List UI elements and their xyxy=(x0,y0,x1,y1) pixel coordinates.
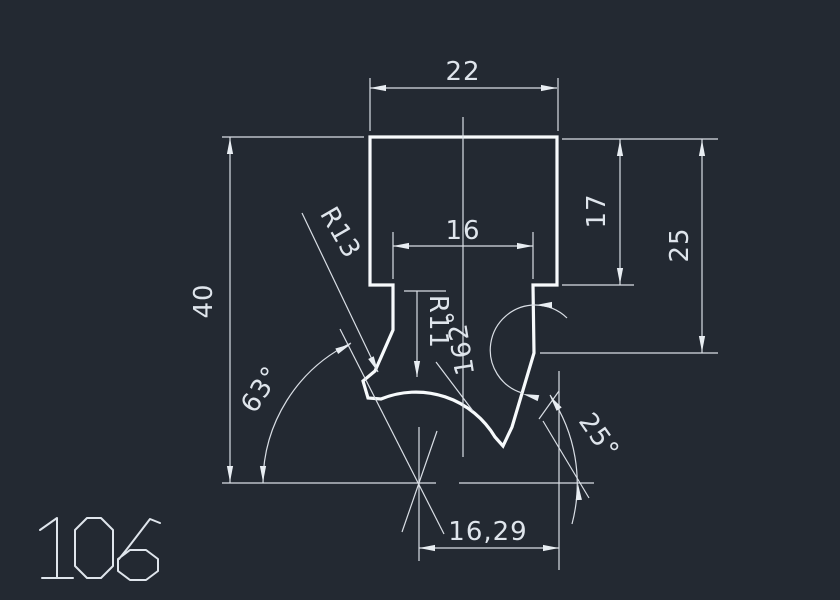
digit-1 xyxy=(40,518,73,578)
dim-angle-left: 63° xyxy=(235,329,444,534)
digit-0 xyxy=(75,518,113,578)
dim-16-label: 16 xyxy=(445,216,480,246)
dim-height-left: 40 xyxy=(189,137,364,483)
dim-height-right: 25 xyxy=(540,139,718,353)
arrowhead xyxy=(543,545,559,551)
dim-22-label: 22 xyxy=(445,57,480,87)
arrowhead xyxy=(617,140,623,156)
arrowhead xyxy=(617,268,623,284)
arrowhead xyxy=(536,302,552,308)
angle-25-label: 25° xyxy=(572,408,625,465)
arrowhead xyxy=(541,85,557,91)
dim-angle-right: 25° xyxy=(436,362,625,524)
part-profile-outline xyxy=(363,137,557,446)
arrowhead xyxy=(522,391,539,401)
arrowhead xyxy=(370,85,386,91)
dim-width-bottom: 16,29 xyxy=(419,371,559,570)
arrowhead xyxy=(260,466,266,482)
dim-width-top: 22 xyxy=(370,57,558,131)
drawing-number xyxy=(40,518,160,580)
dim-25-label: 25 xyxy=(665,227,695,262)
angle-162-label: 162° xyxy=(441,307,481,378)
arrowhead xyxy=(699,336,705,352)
arrowhead xyxy=(419,545,435,551)
angle-63-label: 63° xyxy=(235,361,287,419)
dim-40-label: 40 xyxy=(189,283,219,318)
dim-16-29-label: 16,29 xyxy=(448,517,527,547)
arrowhead xyxy=(227,138,233,154)
arrowhead xyxy=(393,243,409,249)
cad-drawing: 22 16 17 25 40 xyxy=(0,0,840,600)
cad-drawing-canvas[interactable]: 22 16 17 25 40 xyxy=(0,0,840,600)
arrowhead xyxy=(699,140,705,156)
arrowhead xyxy=(227,466,233,482)
dim-angle-groove: 162° xyxy=(441,302,567,401)
arrowhead xyxy=(517,243,533,249)
digit-6 xyxy=(118,519,160,580)
arrowhead xyxy=(414,361,420,377)
dim-17-label: 17 xyxy=(582,193,612,228)
arrowhead xyxy=(575,484,582,500)
